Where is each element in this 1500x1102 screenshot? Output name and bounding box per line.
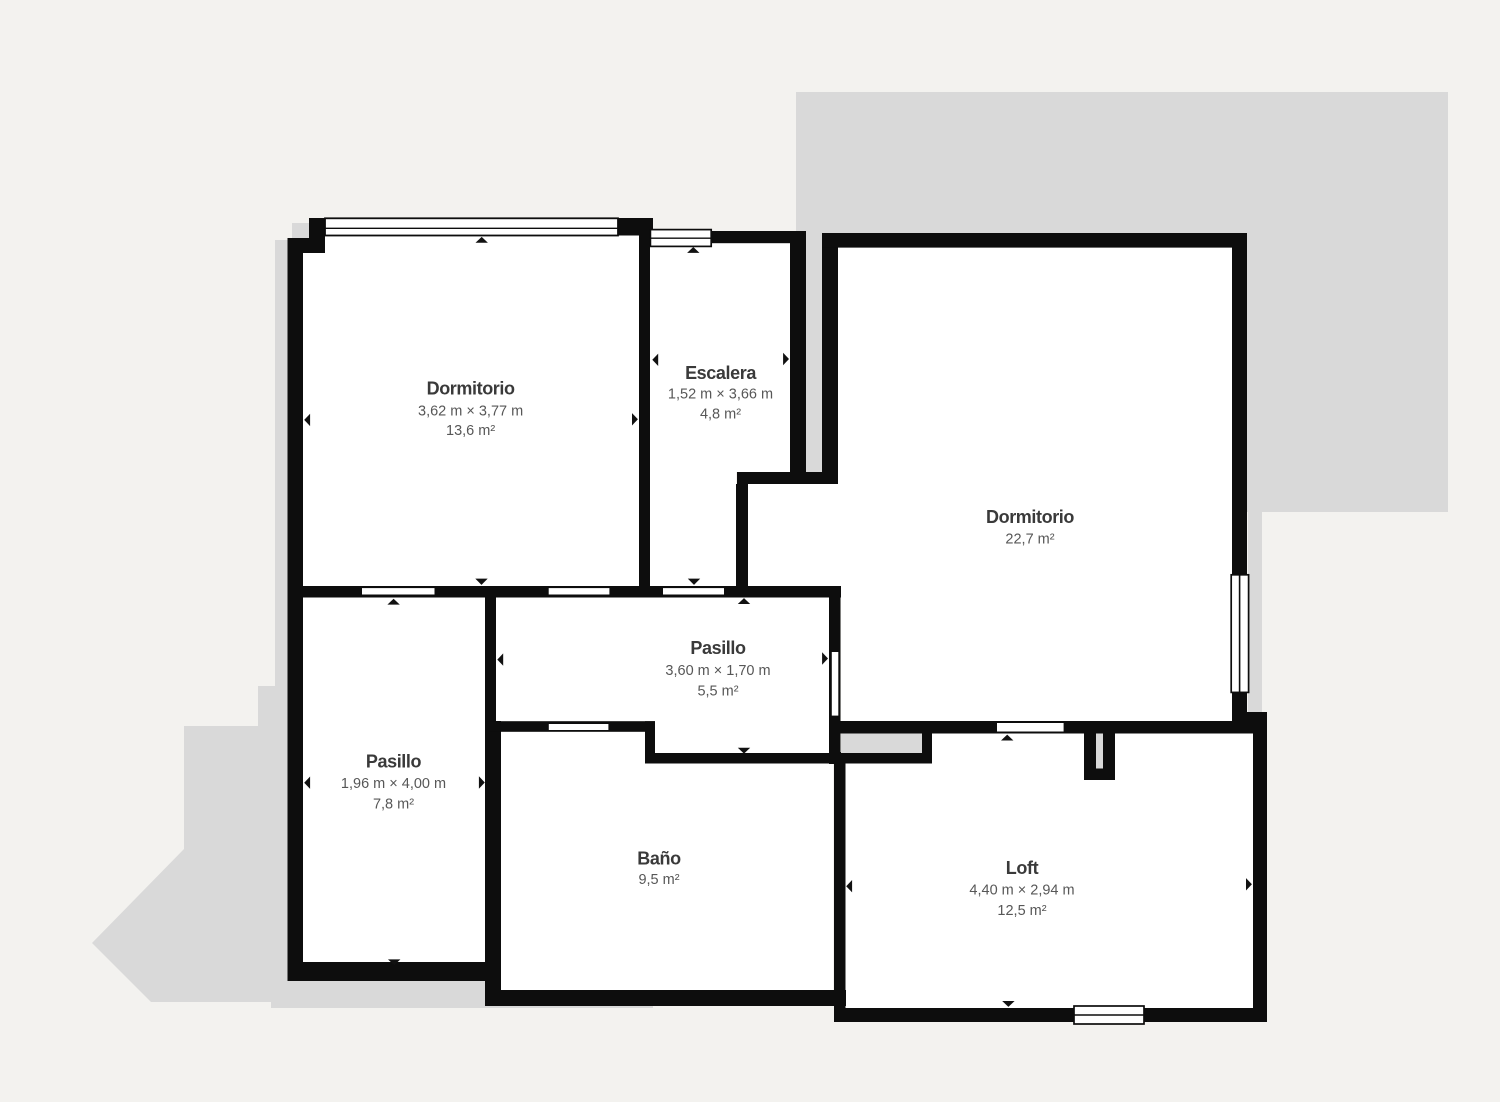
svg-text:4,8 m²: 4,8 m² [700, 406, 741, 422]
svg-text:1,96 m × 4,00 m: 1,96 m × 4,00 m [341, 776, 446, 792]
svg-text:Baño: Baño [637, 849, 681, 869]
svg-text:5,5 m²: 5,5 m² [697, 683, 738, 699]
svg-text:Pasillo: Pasillo [690, 638, 746, 658]
svg-text:Loft: Loft [1006, 858, 1039, 878]
svg-text:12,5 m²: 12,5 m² [997, 903, 1046, 919]
svg-text:Pasillo: Pasillo [366, 752, 422, 772]
svg-text:22,7 m²: 22,7 m² [1005, 532, 1054, 548]
svg-text:4,40 m × 2,94 m: 4,40 m × 2,94 m [969, 882, 1074, 898]
svg-text:Dormitorio: Dormitorio [427, 379, 515, 399]
svg-text:7,8 m²: 7,8 m² [373, 796, 414, 812]
svg-text:3,60 m × 1,70 m: 3,60 m × 1,70 m [665, 663, 770, 679]
svg-text:9,5 m²: 9,5 m² [638, 872, 679, 888]
svg-text:Dormitorio: Dormitorio [986, 507, 1074, 527]
svg-text:Escalera: Escalera [685, 363, 757, 383]
svg-text:3,62 m × 3,77 m: 3,62 m × 3,77 m [418, 403, 523, 419]
svg-text:13,6 m²: 13,6 m² [446, 423, 495, 439]
svg-text:1,52 m × 3,66 m: 1,52 m × 3,66 m [668, 387, 773, 403]
